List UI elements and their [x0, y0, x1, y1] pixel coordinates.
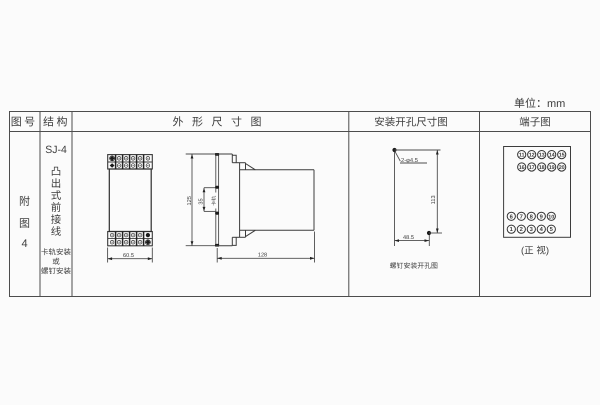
- svg-text:2-φ4.5: 2-φ4.5: [401, 157, 418, 164]
- svg-text:16: 16: [519, 165, 525, 171]
- svg-text:4: 4: [540, 227, 544, 233]
- svg-text:13: 13: [539, 153, 545, 159]
- svg-text:安装开孔尺寸图: 安装开孔尺寸图: [374, 117, 448, 129]
- svg-text:卡轨安装: 卡轨安装: [41, 248, 71, 257]
- svg-text:或: 或: [52, 257, 60, 266]
- svg-text:卡轨: 卡轨: [211, 196, 218, 206]
- svg-text:螺钉安装开孔图: 螺钉安装开孔图: [390, 262, 438, 270]
- svg-text:单位：mm: 单位：mm: [514, 97, 565, 110]
- svg-text:9: 9: [540, 213, 544, 220]
- svg-text:凸: 凸: [51, 166, 62, 178]
- svg-text:20: 20: [559, 165, 565, 171]
- svg-text:8: 8: [530, 213, 534, 220]
- svg-text:接: 接: [51, 214, 62, 226]
- svg-text:(正 视): (正 视): [521, 245, 549, 256]
- svg-text:图号: 图号: [11, 117, 38, 129]
- svg-text:12: 12: [529, 153, 535, 159]
- svg-text:7: 7: [520, 214, 523, 220]
- svg-text:出: 出: [51, 178, 62, 190]
- svg-text:4: 4: [21, 238, 27, 250]
- svg-text:19: 19: [549, 165, 555, 171]
- svg-text:125: 125: [187, 196, 193, 206]
- svg-text:113: 113: [431, 195, 437, 204]
- svg-text:3: 3: [530, 226, 534, 233]
- svg-text:48.5: 48.5: [403, 235, 414, 241]
- svg-text:2: 2: [520, 226, 523, 233]
- svg-text:图: 图: [19, 218, 30, 230]
- svg-text:128: 128: [258, 252, 267, 258]
- svg-text:螺钉安装: 螺钉安装: [41, 267, 71, 276]
- svg-text:35: 35: [199, 198, 205, 204]
- svg-text:60.5: 60.5: [123, 253, 134, 259]
- svg-text:11: 11: [519, 153, 525, 159]
- svg-text:结构: 结构: [43, 116, 70, 129]
- svg-text:15: 15: [559, 153, 565, 159]
- svg-text:式: 式: [51, 190, 62, 202]
- svg-text:17: 17: [529, 165, 535, 171]
- svg-text:6: 6: [510, 213, 514, 220]
- svg-text:线: 线: [51, 226, 62, 238]
- svg-text:1: 1: [510, 227, 514, 233]
- svg-text:18: 18: [539, 165, 545, 171]
- svg-text:10: 10: [548, 214, 554, 220]
- svg-text:前: 前: [51, 202, 62, 214]
- svg-text:SJ-4: SJ-4: [45, 144, 67, 156]
- svg-text:附: 附: [19, 195, 30, 208]
- svg-text:5: 5: [550, 227, 554, 233]
- svg-text:14: 14: [549, 153, 555, 159]
- svg-text:端子图: 端子图: [519, 117, 551, 129]
- svg-text:外形尺寸图: 外形尺寸图: [173, 116, 271, 129]
